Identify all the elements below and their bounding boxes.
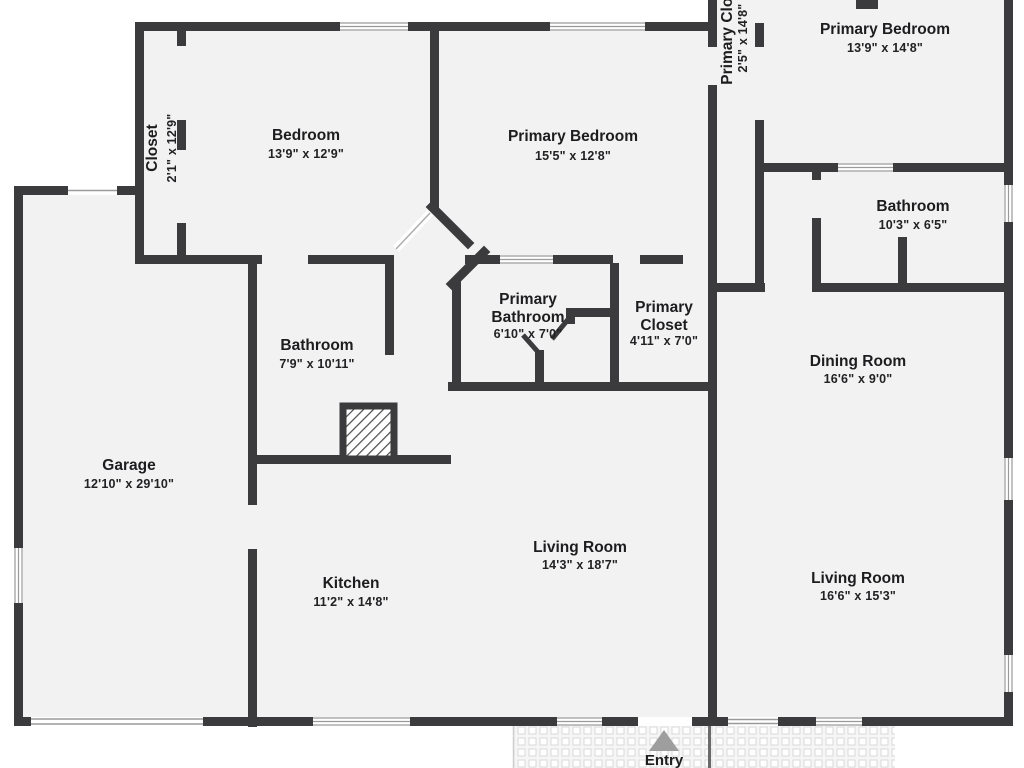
room-dims: 14'3" x 18'7" [542, 558, 618, 572]
room-dims: 4'11" x 7'0" [630, 334, 698, 348]
window-dining-east [1004, 458, 1013, 500]
room-name: Dining Room [810, 353, 906, 370]
patio-slider-door [728, 717, 778, 726]
interior-fixtures [343, 406, 394, 459]
room-label-dining-room: Dining Room 16'6" x 9'0" [810, 353, 906, 386]
floor-plan-page: Closet 2'1" x 12'9" Bedroom 13'9" x 12'9… [0, 0, 1024, 768]
room-name-line1: Primary [499, 291, 557, 308]
room-name-line1: Primary [635, 299, 693, 316]
room-dims: 2'1" x 12'9" [165, 114, 179, 183]
room-label-primary-bathroom: Primary Bathroom 6'10" x 7'0" [491, 291, 564, 341]
garage-side-door [68, 186, 117, 195]
room-name: Closet [144, 124, 161, 171]
room-name-line2: Closet [640, 317, 687, 334]
window-living-right-bottom [816, 717, 862, 726]
room-name: Living Room [811, 570, 905, 587]
room-label-living-room-center: Living Room 14'3" x 18'7" [533, 539, 627, 572]
window-hall-right [838, 163, 893, 172]
room-dims: 16'6" x 15'3" [820, 589, 896, 603]
window-kitchen-bottom [313, 717, 410, 726]
patio-divider-line [708, 726, 711, 768]
room-dims: 16'6" x 9'0" [824, 372, 893, 386]
window-primary-bedroom-top [550, 22, 645, 31]
room-name-line2: Bathroom [491, 309, 564, 326]
room-name: Primary Bedroom [508, 128, 638, 145]
room-dims: 12'10" x 29'10" [84, 477, 174, 491]
room-dims: 13'9" x 14'8" [847, 41, 923, 55]
floor-plan-drawing: Closet 2'1" x 12'9" Bedroom 13'9" x 12'9… [0, 0, 1024, 768]
room-name: Living Room [533, 539, 627, 556]
patio-pavers [513, 726, 895, 768]
room-name: Bathroom [280, 337, 353, 354]
window-garage-west [14, 548, 23, 603]
room-name: Primary Bedroom [820, 21, 950, 38]
room-dims: 11'2" x 14'8" [313, 595, 388, 609]
room-name: Bathroom [876, 198, 949, 215]
room-dims: 6'10" x 7'0" [494, 327, 563, 341]
room-label-primary-closet-top: Primary Closet 2'5" x 14'8" [719, 0, 750, 85]
window-primary-bedroom-bottom [500, 255, 553, 264]
entry-patio [513, 726, 895, 768]
room-name: Garage [102, 457, 156, 474]
window-living-right-east [1004, 655, 1013, 692]
chimney-hatch-box [343, 406, 394, 459]
room-dims: 13'9" x 12'9" [268, 147, 344, 161]
window-bathroom-right-east [1004, 185, 1013, 222]
room-name: Primary Closet [719, 0, 736, 85]
room-label-living-room-right: Living Room 16'6" x 15'3" [811, 570, 905, 603]
window-living-center-bottom [557, 717, 602, 726]
entry-door-opening [638, 717, 692, 726]
window-bedroom-top [340, 22, 408, 31]
entry-label: Entry [645, 752, 684, 768]
room-dims: 7'9" x 10'11" [279, 357, 354, 371]
room-dims: 15'5" x 12'8" [535, 149, 611, 163]
room-dims: 10'3" x 6'5" [879, 218, 948, 232]
garage-door-opening [31, 717, 203, 726]
room-dims: 2'5" x 14'8" [736, 4, 750, 73]
room-name: Kitchen [323, 575, 380, 592]
room-name: Bedroom [272, 127, 340, 144]
